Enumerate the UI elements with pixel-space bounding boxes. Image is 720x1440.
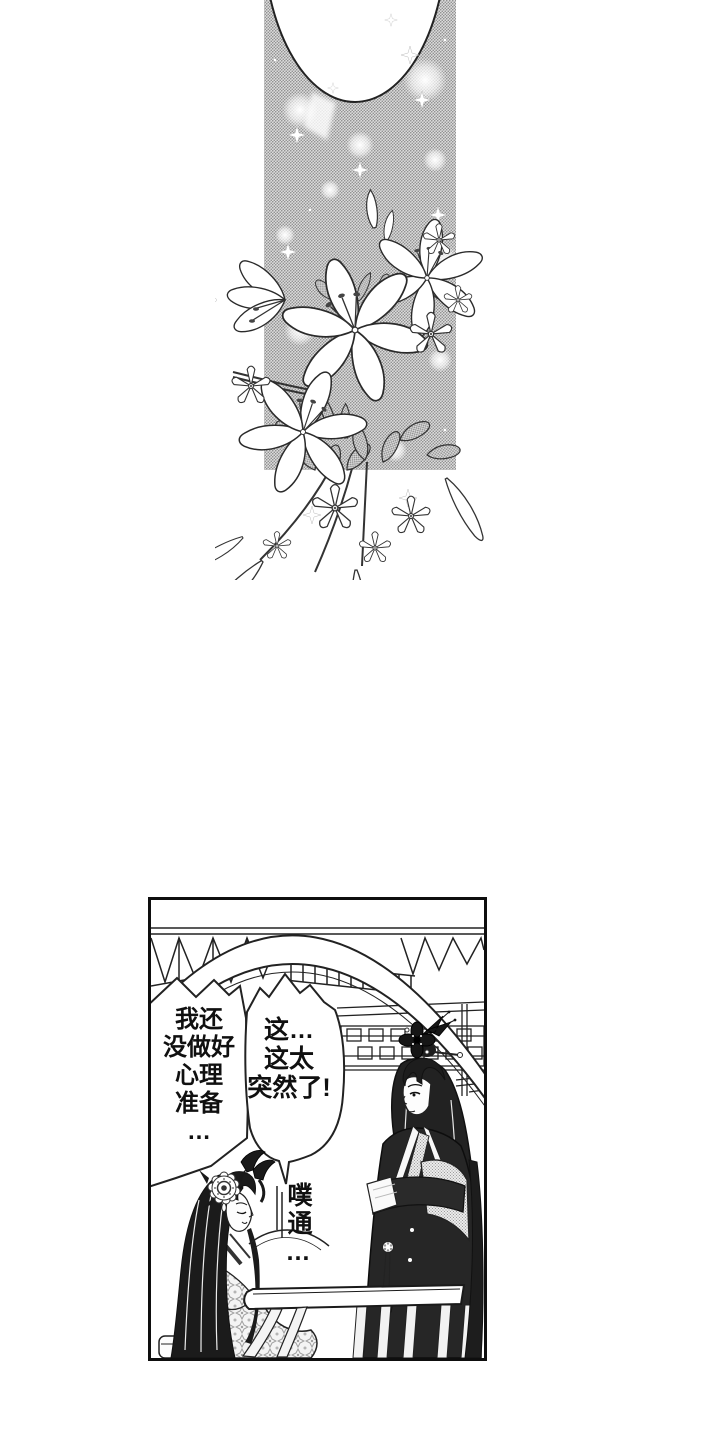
bubble-left-line: … (153, 1118, 245, 1146)
bubble-left-line: 我还 (153, 1006, 245, 1034)
bubble-right-line: 这… (237, 1016, 341, 1045)
bubble-left-line: 心理 (153, 1062, 245, 1090)
bubble-right-line: 突然了! (237, 1074, 341, 1103)
bubble-left-line: 准备 (153, 1090, 245, 1118)
table-top (244, 1285, 464, 1309)
bubble-left-text: 我还 没做好 心理 准备 … (153, 1006, 245, 1146)
top-panel-art (215, 0, 485, 580)
bubble-right-line: 这太 (237, 1045, 341, 1074)
manga-page: 我还 没做好 心理 准备 … 这… 这太 突然了! 噗通… (0, 0, 720, 1440)
top-panel (215, 0, 485, 580)
bubble-right-text: 这… 这太 突然了! (237, 1016, 341, 1103)
blade-leaves (215, 475, 485, 580)
male-face (403, 1077, 431, 1115)
sfx-putong: 噗通… (280, 1182, 316, 1269)
bubble-left-line: 没做好 (153, 1034, 245, 1062)
bottom-panel: 我还 没做好 心理 准备 … 这… 这太 突然了! 噗通… (148, 897, 487, 1361)
